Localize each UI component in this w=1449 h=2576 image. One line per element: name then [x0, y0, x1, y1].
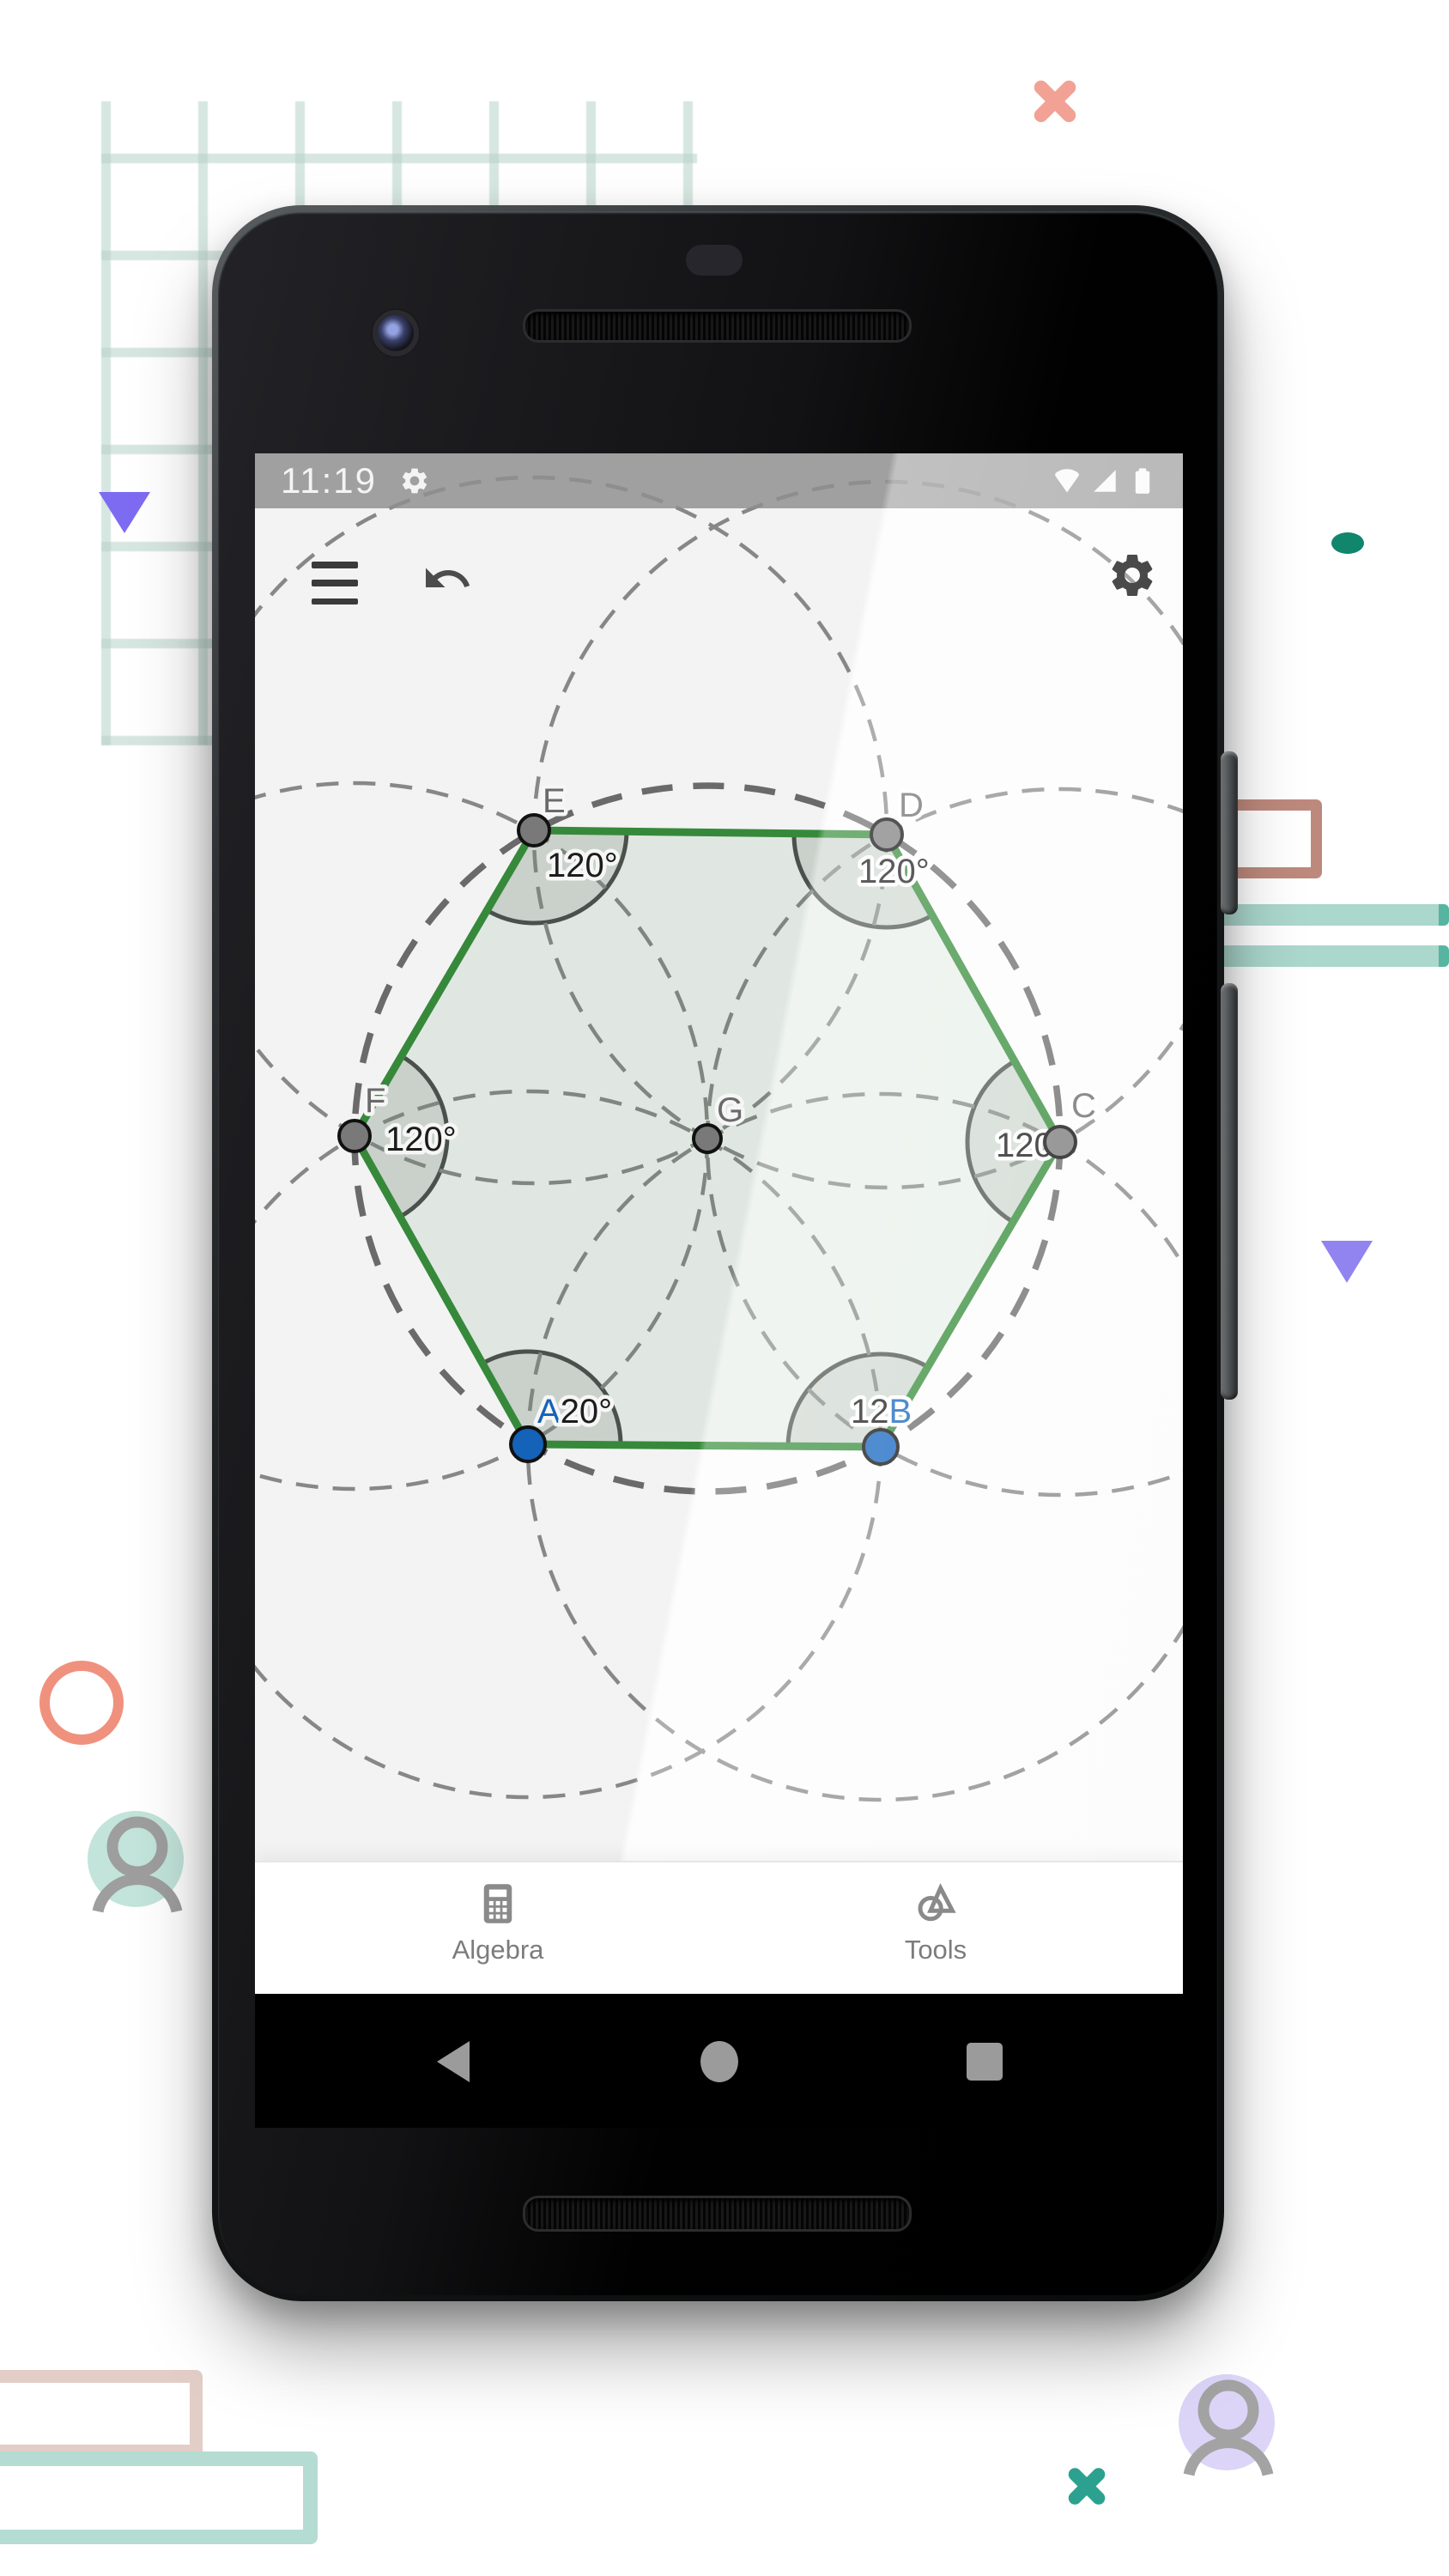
proximity-sensor [686, 245, 743, 276]
status-bar: 11:19 [255, 453, 1183, 508]
point-B[interactable] [864, 1430, 898, 1464]
ring-orange-decoration [39, 1661, 124, 1745]
tab-tools-label: Tools [905, 1935, 967, 1965]
user-avatar-lavender-decoration [1176, 2372, 1279, 2477]
menu-icon[interactable] [312, 562, 358, 605]
x-mark-salmon-decoration [1028, 74, 1082, 129]
status-time: 11:19 [281, 460, 377, 501]
wifi-icon [1052, 465, 1082, 496]
back-icon[interactable] [437, 2041, 470, 2082]
angle-label-D[interactable]: 120° [858, 853, 930, 890]
earpiece-speaker [523, 309, 912, 343]
point-label-C[interactable]: C [1071, 1087, 1096, 1125]
user-avatar-teal-decoration [85, 1809, 188, 1914]
sketch-rect-teal-decoration [0, 2451, 318, 2544]
calculator-icon [476, 1881, 520, 1926]
cellular-signal-icon [1090, 465, 1119, 496]
sketch-line-teal-decoration [1214, 945, 1449, 967]
point-F[interactable] [339, 1121, 370, 1151]
sketch-rect-pink-decoration [0, 2370, 203, 2458]
triangle-purple-left-decoration [99, 492, 150, 533]
triangle-purple-right-decoration [1321, 1241, 1373, 1283]
volume-button[interactable] [1221, 983, 1238, 1400]
point-label-E[interactable]: E [543, 782, 566, 820]
page-background: 120°120°120°120°A20°12BEDFCG 11:19 Algeb… [0, 0, 1449, 2576]
phone-mockup: 120°120°120°120°A20°12BEDFCG 11:19 Algeb… [212, 205, 1224, 2301]
geometry-tools-icon [913, 1881, 958, 1926]
point-A[interactable] [511, 1427, 545, 1461]
point-D[interactable] [871, 819, 902, 850]
settings-gear-icon[interactable] [1106, 550, 1158, 601]
tab-tools[interactable]: Tools [850, 1862, 1022, 1996]
bottom-tab-bar: Algebra Tools [255, 1861, 1183, 1996]
point-C[interactable] [1045, 1127, 1076, 1157]
undo-icon[interactable] [421, 553, 473, 605]
front-camera [373, 310, 419, 356]
status-gear-icon [399, 465, 430, 496]
angle-label-A[interactable]: A20° [537, 1393, 612, 1431]
tab-algebra-label: Algebra [452, 1935, 544, 1965]
point-label-F[interactable]: F [365, 1082, 385, 1120]
recents-icon[interactable] [967, 2043, 1003, 2081]
power-button[interactable] [1221, 751, 1238, 914]
bottom-speaker [523, 2196, 912, 2232]
x-mark-teal-decoration [1063, 2463, 1118, 2518]
android-nav-bar [255, 1994, 1183, 2128]
dot-teal-decoration [1331, 532, 1364, 554]
angle-label-B[interactable]: 12B [851, 1393, 912, 1431]
tab-algebra[interactable]: Algebra [412, 1862, 584, 1996]
angle-label-F[interactable]: 120° [385, 1121, 457, 1158]
angle-label-E[interactable]: 120° [547, 847, 618, 884]
home-icon[interactable] [700, 2041, 738, 2082]
point-label-G[interactable]: G [717, 1091, 743, 1129]
phone-screen: 120°120°120°120°A20°12BEDFCG 11:19 Algeb… [255, 453, 1183, 2128]
battery-icon [1128, 465, 1157, 496]
point-label-D[interactable]: D [899, 787, 924, 824]
sketch-line-teal-decoration [1214, 904, 1449, 926]
